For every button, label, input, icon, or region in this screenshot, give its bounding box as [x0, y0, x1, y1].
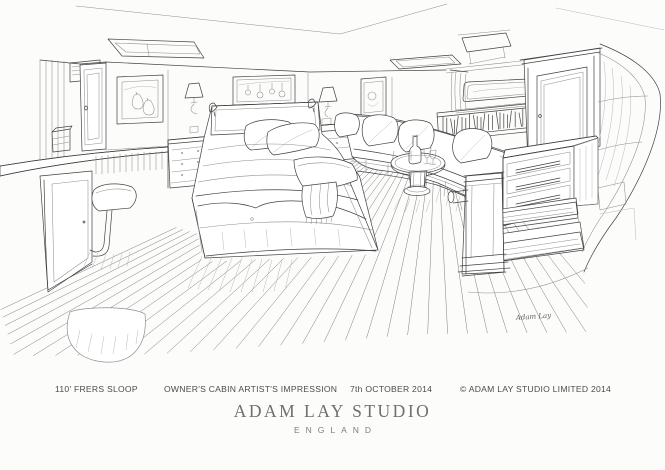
studio-location: ENGLAND	[0, 425, 665, 435]
caption-title: OWNER'S CABIN ARTIST'S IMPRESSION	[164, 384, 337, 394]
skylight-hatch-left	[108, 39, 204, 58]
book-spine	[519, 113, 522, 127]
skylight-hatch-center	[390, 55, 461, 69]
studio-name: ADAM LAY STUDIO	[0, 401, 665, 422]
picture-frame-left	[117, 75, 163, 124]
floor-rug	[67, 308, 145, 362]
book-spine	[456, 116, 458, 133]
wall-sconce-left	[185, 83, 203, 114]
picture-frame-right	[361, 77, 386, 117]
caption-date: 7th OCTOBER 2014	[350, 384, 432, 394]
caption-copyright: © ADAM LAY STUDIO LIMITED 2014	[460, 384, 611, 394]
book-spine	[483, 114, 485, 131]
presentation-sheet: Adam Lay 110' FRERS SLOOP OWNER'S CABIN …	[0, 0, 665, 470]
caption-row: 110' FRERS SLOOP OWNER'S CABIN ARTIST'S …	[0, 384, 665, 396]
picture-frame-center	[233, 75, 295, 105]
jewelry-box	[52, 126, 72, 152]
artist-signature: Adam Lay	[515, 311, 553, 322]
deck-box	[458, 30, 511, 64]
window-curtain	[450, 70, 468, 112]
wardrobe-door	[80, 63, 106, 151]
wall-sconce-right	[319, 87, 337, 117]
port-corner-panel	[40, 60, 64, 162]
cabin-sketch-drawing: Adam Lay	[0, 0, 665, 378]
book-spine	[509, 111, 511, 128]
ceiling	[76, 4, 664, 34]
caption-project: 110' FRERS SLOOP	[55, 384, 138, 394]
desk-side-panel	[40, 171, 92, 292]
book-spine	[451, 119, 454, 134]
book-spine	[496, 112, 499, 129]
